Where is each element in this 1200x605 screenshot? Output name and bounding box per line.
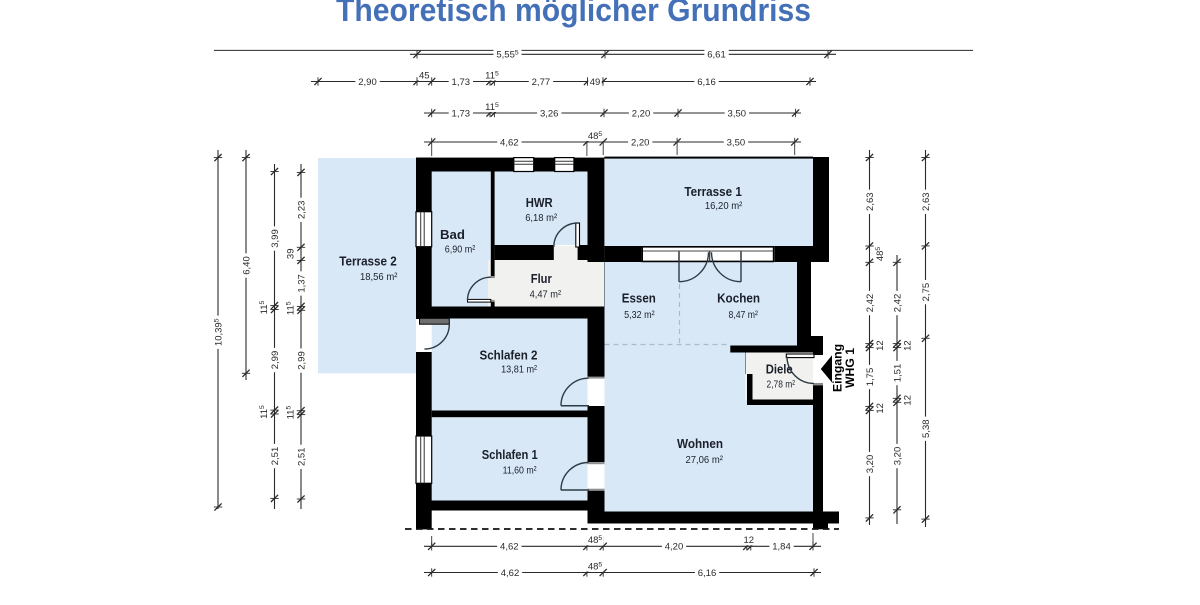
svg-text:2,42: 2,42 (892, 294, 903, 313)
svg-text:3,26: 3,26 (540, 108, 559, 119)
svg-text:HWR: HWR (526, 195, 553, 210)
svg-text:2,78 m²: 2,78 m² (767, 380, 796, 391)
svg-text:13,81 m²: 13,81 m² (501, 365, 538, 376)
svg-text:3,50: 3,50 (727, 137, 746, 148)
svg-text:6,18 m²: 6,18 m² (525, 213, 558, 224)
svg-text:5,38: 5,38 (921, 419, 932, 438)
svg-text:4,62: 4,62 (500, 542, 519, 553)
svg-text:3,20: 3,20 (865, 455, 876, 474)
svg-text:4,20: 4,20 (665, 542, 684, 553)
svg-text:2,23: 2,23 (296, 201, 307, 220)
svg-text:6,90 m²: 6,90 m² (445, 245, 476, 256)
svg-text:18,56 m²: 18,56 m² (360, 272, 398, 283)
svg-text:27,06 m²: 27,06 m² (685, 455, 723, 466)
svg-text:1,73: 1,73 (452, 108, 471, 119)
svg-text:Terrasse 2: Terrasse 2 (339, 254, 397, 269)
svg-text:12: 12 (902, 340, 913, 351)
svg-text:11,60 m²: 11,60 m² (503, 466, 537, 477)
svg-text:6,16: 6,16 (697, 77, 716, 88)
svg-text:1,37: 1,37 (296, 274, 307, 293)
svg-text:10,395: 10,395 (213, 318, 224, 346)
svg-text:2,51: 2,51 (296, 448, 307, 467)
svg-text:Kochen: Kochen (717, 290, 760, 305)
svg-text:2,75: 2,75 (921, 283, 932, 302)
svg-text:12: 12 (875, 403, 886, 414)
svg-text:12: 12 (875, 340, 886, 351)
svg-text:4,47 m²: 4,47 m² (530, 290, 562, 301)
svg-text:6,61: 6,61 (707, 50, 726, 61)
svg-text:39: 39 (285, 249, 296, 260)
svg-text:3,20: 3,20 (892, 447, 903, 466)
svg-text:2,99: 2,99 (270, 351, 281, 370)
svg-text:2,20: 2,20 (632, 108, 651, 119)
svg-text:1,73: 1,73 (452, 77, 471, 88)
svg-text:Terrasse 1: Terrasse 1 (684, 184, 742, 199)
svg-text:1,75: 1,75 (865, 368, 876, 387)
svg-text:3,99: 3,99 (270, 229, 281, 248)
svg-text:Essen: Essen (622, 290, 656, 305)
svg-text:6,40: 6,40 (241, 256, 252, 275)
svg-text:8,47 m²: 8,47 m² (728, 310, 758, 321)
svg-text:Schlafen 1: Schlafen 1 (482, 447, 538, 462)
svg-text:5,32 m²: 5,32 m² (624, 310, 655, 321)
svg-text:2,63: 2,63 (865, 192, 876, 211)
svg-text:2,90: 2,90 (358, 77, 377, 88)
svg-text:2,77: 2,77 (532, 77, 551, 88)
svg-text:45: 45 (419, 70, 430, 81)
svg-text:Flur: Flur (531, 271, 552, 286)
svg-text:12: 12 (902, 395, 913, 406)
svg-text:16,20 m²: 16,20 m² (705, 201, 743, 212)
svg-text:2,20: 2,20 (631, 137, 650, 148)
svg-text:1,51: 1,51 (892, 364, 903, 383)
svg-text:3,50: 3,50 (728, 108, 747, 119)
svg-text:12: 12 (744, 535, 755, 546)
svg-text:Schlafen 2: Schlafen 2 (480, 347, 538, 362)
svg-text:Bad: Bad (440, 227, 465, 242)
svg-text:6,16: 6,16 (698, 568, 717, 579)
svg-text:2,63: 2,63 (921, 192, 932, 211)
svg-text:49: 49 (590, 77, 601, 88)
svg-text:4,62: 4,62 (501, 568, 520, 579)
svg-text:2,42: 2,42 (865, 294, 876, 313)
svg-text:Theoretisch möglicher Grundris: Theoretisch möglicher Grundriss (336, 0, 811, 28)
svg-text:4,62: 4,62 (500, 137, 519, 148)
svg-text:WHG 1: WHG 1 (843, 348, 857, 388)
svg-text:Diele: Diele (766, 361, 793, 376)
svg-text:1,84: 1,84 (772, 542, 791, 553)
svg-text:Wohnen: Wohnen (677, 436, 723, 451)
svg-text:2,99: 2,99 (296, 351, 307, 370)
svg-text:2,51: 2,51 (270, 447, 281, 466)
